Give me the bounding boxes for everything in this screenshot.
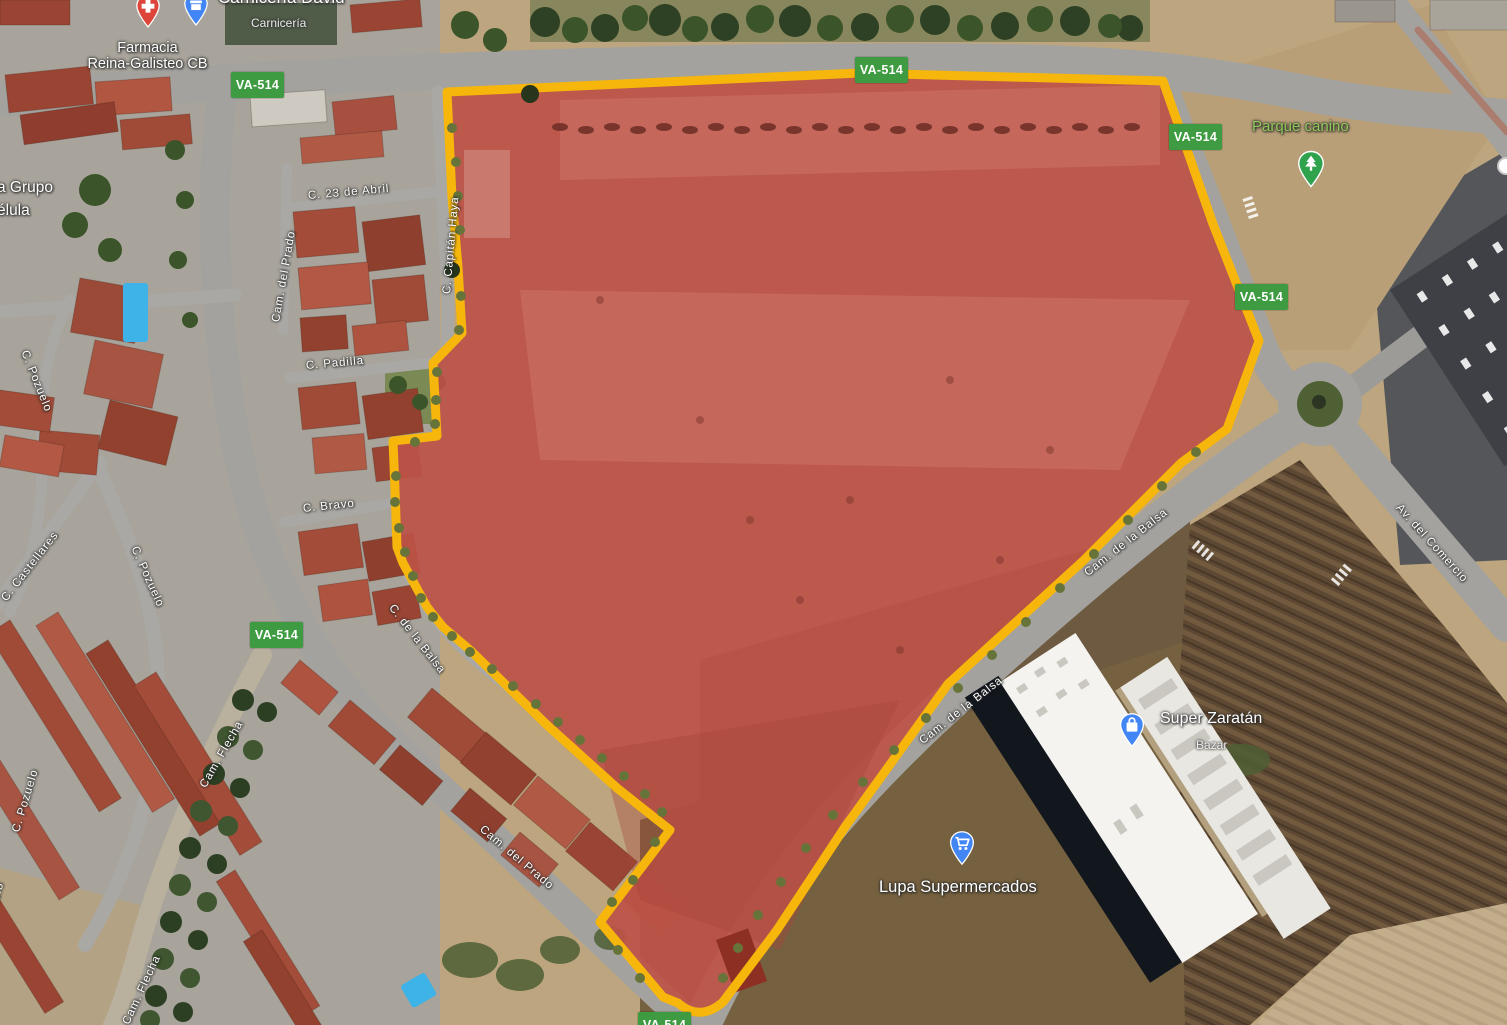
partial-poi-icon (1498, 158, 1507, 174)
poi-label-farmacia-line1: Farmacia (60, 40, 235, 56)
swimming-pool (123, 283, 148, 342)
poi-label-grupo-line1: a Grupo (0, 179, 53, 197)
poi-label-farmacia[interactable]: Farmacia Reina-Galisteo CB (60, 40, 235, 72)
butcher-shop-pin-icon[interactable] (183, 0, 209, 31)
route-shield-va514-topleft: VA-514 (231, 72, 284, 98)
satellite-base (0, 0, 1507, 1025)
map-canvas[interactable]: VA-514 VA-514 VA-514 VA-514 VA-514 VA-51… (0, 0, 1507, 1025)
poi-label-parque-canino[interactable]: Parque canino (1252, 118, 1349, 135)
route-shield-va514-upperright: VA-514 (1169, 124, 1222, 150)
poi-label-lupa-supermercados[interactable]: Lupa Supermercados (879, 878, 1037, 897)
poi-label-super-zaratan-type: Bazar (1196, 738, 1227, 752)
poi-label-farmacia-line2: Reina-Galisteo CB (60, 56, 235, 72)
route-shield-va514-left: VA-514 (250, 622, 303, 648)
poi-label-super-zaratan[interactable]: Super Zaratán (1160, 710, 1262, 728)
shopping-cart-pin-icon[interactable] (949, 830, 975, 871)
poi-label-grupo-line2: élula (0, 202, 30, 220)
pharmacy-pin-icon[interactable] (135, 0, 161, 33)
route-shield-va514-bottom: VA-514 (638, 1012, 691, 1025)
route-shield-va514-top: VA-514 (855, 57, 908, 83)
shopping-bag-pin-icon[interactable] (1119, 712, 1145, 753)
poi-label-carniceria-type: Carnicería (251, 16, 306, 30)
poi-label-carniceria-david[interactable]: Carnicería David (218, 0, 345, 8)
route-shield-va514-right: VA-514 (1235, 284, 1288, 310)
park-pin-icon[interactable] (1297, 150, 1325, 193)
